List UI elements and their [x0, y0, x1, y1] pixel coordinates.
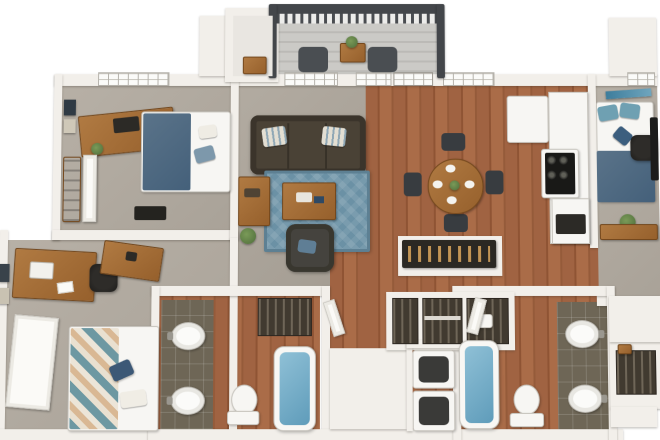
bedroom1-closet-door — [82, 155, 97, 222]
sofa-cushion-seam-1 — [287, 123, 289, 168]
balcony-french-door — [393, 72, 433, 86]
dining-chair-left — [404, 173, 422, 197]
hall-closet-bay-1 — [392, 298, 418, 344]
storage-box — [243, 57, 267, 75]
hall-closet-bay-2 — [422, 298, 462, 344]
burner-3 — [547, 171, 556, 180]
bedroom2-wall-art-2 — [0, 288, 9, 304]
bathroomB-pedestal-sink-2 — [568, 385, 603, 413]
dining-plate-1 — [446, 165, 456, 173]
microwave — [556, 214, 586, 234]
patio-plant — [346, 36, 358, 48]
apartment-floor-plan — [0, 4, 660, 440]
bedroom1-desk-plant — [91, 143, 103, 155]
bedroom2-dresser-decor — [125, 251, 137, 261]
coffee-table-tray — [296, 192, 312, 202]
bathroomA-pedestal-sink-2 — [171, 387, 206, 415]
dining-chair-bottom — [444, 214, 468, 232]
far-right-closet — [616, 350, 657, 394]
bedroom1-white-pillow — [198, 124, 217, 139]
washer-door — [419, 356, 449, 382]
dining-window-1 — [356, 72, 392, 86]
dining-plate-4 — [447, 196, 457, 204]
dining-plate-2 — [433, 180, 443, 188]
console-table — [238, 176, 270, 226]
bedroom2-chevron-blanket — [69, 328, 119, 429]
bathroomA-pedestal-sink-1 — [171, 322, 205, 350]
patio-chair-left — [298, 47, 328, 72]
burner-4 — [559, 171, 568, 180]
wall-center-mass — [330, 348, 407, 429]
bathroomA-faucet-1 — [167, 332, 173, 340]
balcony-balusters — [277, 14, 437, 24]
bedroom3-blue-pillow-2 — [619, 102, 641, 119]
bedroom1-wall-art-2 — [64, 119, 76, 133]
floor-plan-image — [0, 0, 660, 440]
bedroom1-floor-mat — [134, 206, 166, 220]
coffee-table-book — [314, 196, 324, 203]
bedroom1-denim-comforter — [143, 113, 191, 190]
wall-bath-bottom — [148, 429, 623, 440]
wall-bedroom1-bottom — [52, 230, 238, 240]
bedroom3-window — [627, 72, 655, 86]
bathroomA-faucet-2 — [167, 397, 173, 405]
patio-chair-right — [368, 47, 398, 72]
wall-right-bottom-mass — [611, 407, 658, 427]
bedroom1-closet-shelf — [62, 157, 81, 222]
refrigerator — [507, 96, 549, 143]
bedroom3-desk — [650, 117, 659, 180]
far-right-closet-ledge — [618, 344, 632, 354]
balcony-railing-top — [271, 4, 443, 14]
bedroom2-laptop — [29, 261, 54, 279]
bedroom1-window — [98, 72, 170, 86]
bedroom2-open-door — [5, 314, 59, 410]
bathroomB-faucet-2 — [601, 395, 607, 403]
wall-right-mid-mass — [609, 296, 660, 342]
sofa-pillow-right — [321, 126, 347, 147]
bedroom3-low-table — [600, 224, 658, 240]
hall-closet-shelf — [424, 316, 460, 320]
bathroomA-toilet-tank — [227, 411, 259, 425]
bar-bottles — [408, 246, 490, 262]
living-room-plant — [240, 228, 256, 244]
bathroomB-tub-water — [465, 346, 494, 423]
bathroomB-pedestal-sink-1 — [565, 320, 600, 348]
bathroomB-faucet-1 — [598, 330, 604, 338]
bedroom2-wall-art-1 — [0, 264, 10, 282]
dryer-door — [419, 397, 449, 425]
bathroomB-toilet-bowl — [513, 385, 540, 415]
bedroom1-wall-art-1 — [64, 100, 76, 116]
balcony-railing-right — [437, 4, 445, 78]
living-room-window — [284, 72, 338, 86]
burner-1 — [547, 156, 556, 165]
burner-2 — [559, 156, 568, 165]
bathroomB-toilet-tank — [510, 413, 544, 427]
console-decor — [244, 188, 260, 197]
dining-window-2 — [443, 72, 495, 86]
dining-chair-right — [485, 171, 503, 195]
bathroomA-linen-closet — [258, 298, 312, 336]
dining-plate-3 — [465, 180, 475, 188]
armchair-pillow — [297, 239, 317, 254]
wall-top-right-mass — [609, 18, 657, 77]
dining-centerpiece — [450, 180, 460, 190]
bedroom2-desk — [12, 248, 97, 302]
bedroom2-papers — [57, 281, 74, 294]
bedroom1-monitor — [113, 116, 140, 133]
bathroomA-tub-water — [279, 352, 309, 425]
sofa-pillow-left — [261, 126, 287, 148]
wall-bathroomA-top — [151, 286, 330, 296]
dining-chair-top — [441, 133, 465, 151]
